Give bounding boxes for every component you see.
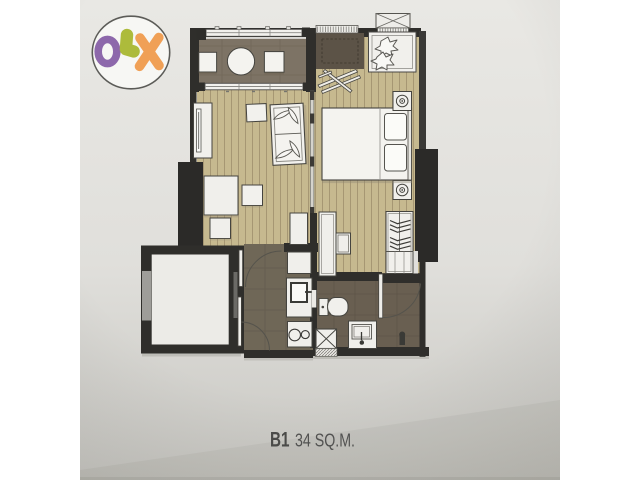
svg-text:B1: B1 (270, 429, 290, 452)
svg-text:34 SQ.M.: 34 SQ.M. (295, 430, 355, 451)
